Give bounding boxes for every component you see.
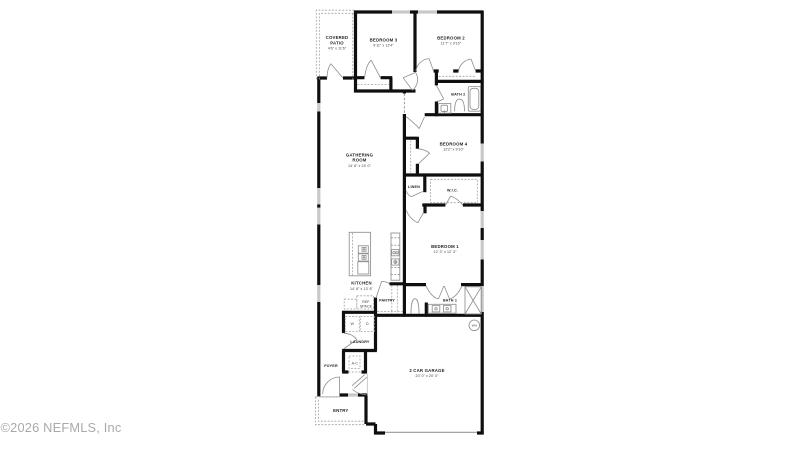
svg-text:BEDROOM 2: BEDROOM 2 [437,36,465,41]
svg-text:WH: WH [472,324,477,328]
svg-text:BEDROOM 1: BEDROOM 1 [431,244,459,249]
svg-text:W: W [351,322,355,326]
svg-text:COVERED: COVERED [326,35,349,40]
svg-text:GATHERING: GATHERING [346,152,374,157]
svg-text:ENTRY: ENTRY [333,408,348,413]
svg-text:12'2" x 9'10": 12'2" x 9'10" [443,148,464,152]
svg-text:BEDROOM 3: BEDROOM 3 [370,38,398,43]
svg-text:20' 0" x 20' 0": 20' 0" x 20' 0" [416,374,440,378]
svg-text:11'7" x 9'10": 11'7" x 9'10" [441,42,462,46]
svg-text:FOYER: FOYER [324,364,338,368]
svg-text:14' 8" x 24' 0": 14' 8" x 24' 0" [348,164,372,168]
svg-text:W.I.C.: W.I.C. [447,188,458,192]
svg-text:4'6" x 11'6": 4'6" x 11'6" [328,47,347,51]
svg-text:LINEN: LINEN [408,185,420,189]
svg-text:D: D [366,322,369,326]
svg-text:9'11" x 12'4": 9'11" x 12'4" [373,44,394,48]
svg-text:SPACE: SPACE [360,304,373,308]
svg-text:12' 3" x 12' 3": 12' 3" x 12' 3" [434,250,458,254]
svg-text:©2026 NEFMLS, Inc: ©2026 NEFMLS, Inc [1,420,122,435]
svg-text:BEDROOM 4: BEDROOM 4 [440,141,468,146]
svg-text:ROOM: ROOM [352,158,366,163]
svg-text:BATH 1: BATH 1 [443,298,457,302]
svg-text:14' 8" x 13' 8": 14' 8" x 13' 8" [350,287,374,291]
svg-text:PATIO: PATIO [330,40,344,45]
svg-text:PANTRY: PANTRY [379,298,395,302]
svg-text:KITCHEN: KITCHEN [351,281,372,286]
svg-text:2 CAR GARAGE: 2 CAR GARAGE [409,368,444,373]
svg-text:BATH 2: BATH 2 [451,92,465,96]
svg-text:A-C: A-C [352,361,359,365]
svg-text:LAUNDRY: LAUNDRY [350,340,370,344]
